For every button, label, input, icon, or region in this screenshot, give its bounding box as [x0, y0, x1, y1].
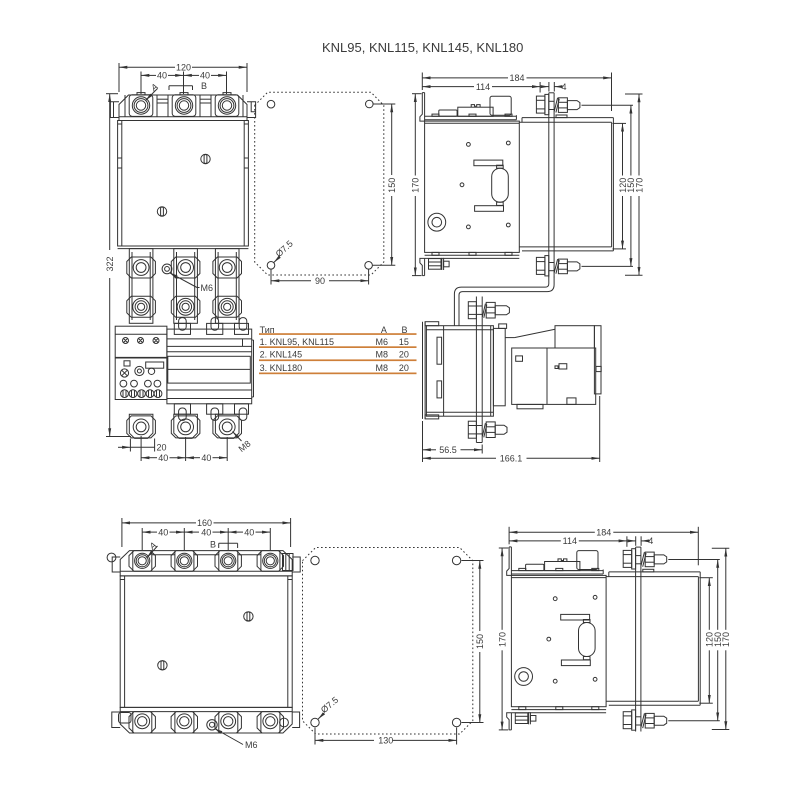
svg-text:M6: M6	[201, 283, 214, 293]
svg-text:B: B	[201, 81, 207, 91]
svg-text:M8: M8	[237, 438, 253, 454]
svg-text:130: 130	[378, 736, 393, 746]
svg-text:40: 40	[201, 527, 211, 537]
svg-text:1. KNL95, KNL115: 1. KNL95, KNL115	[260, 337, 334, 347]
svg-text:40: 40	[244, 527, 254, 537]
svg-text:20: 20	[157, 443, 167, 453]
svg-text:40: 40	[201, 453, 211, 463]
svg-text:170: 170	[411, 178, 421, 193]
svg-text:322: 322	[105, 256, 115, 271]
svg-text:M8: M8	[376, 350, 389, 360]
svg-text:20: 20	[399, 363, 409, 373]
svg-text:40: 40	[157, 71, 167, 81]
svg-text:KNL95, KNL115, KNL145, KNL180: KNL95, KNL115, KNL145, KNL180	[322, 40, 523, 55]
svg-text:114: 114	[476, 82, 490, 92]
svg-text:4: 4	[562, 82, 567, 92]
svg-text:2. KNL145: 2. KNL145	[260, 350, 303, 360]
svg-text:B: B	[210, 540, 216, 550]
svg-text:150: 150	[475, 634, 485, 649]
svg-text:166.1: 166.1	[500, 454, 523, 464]
svg-text:170: 170	[634, 178, 644, 193]
svg-text:40: 40	[200, 71, 210, 81]
svg-text:184: 184	[509, 73, 524, 83]
svg-text:M6: M6	[376, 337, 389, 347]
svg-text:3. KNL180: 3. KNL180	[260, 363, 303, 373]
svg-text:56.5: 56.5	[439, 445, 457, 455]
svg-text:150: 150	[387, 178, 397, 193]
svg-text:Ø7.5: Ø7.5	[274, 238, 295, 258]
svg-text:40: 40	[158, 527, 168, 537]
svg-text:M8: M8	[376, 363, 389, 373]
svg-text:40: 40	[158, 453, 168, 463]
svg-text:Ø7.5: Ø7.5	[319, 695, 340, 715]
svg-text:M6: M6	[245, 740, 258, 750]
svg-text:120: 120	[176, 63, 191, 73]
svg-text:90: 90	[315, 276, 325, 286]
svg-text:15: 15	[399, 337, 409, 347]
svg-text:20: 20	[399, 350, 409, 360]
